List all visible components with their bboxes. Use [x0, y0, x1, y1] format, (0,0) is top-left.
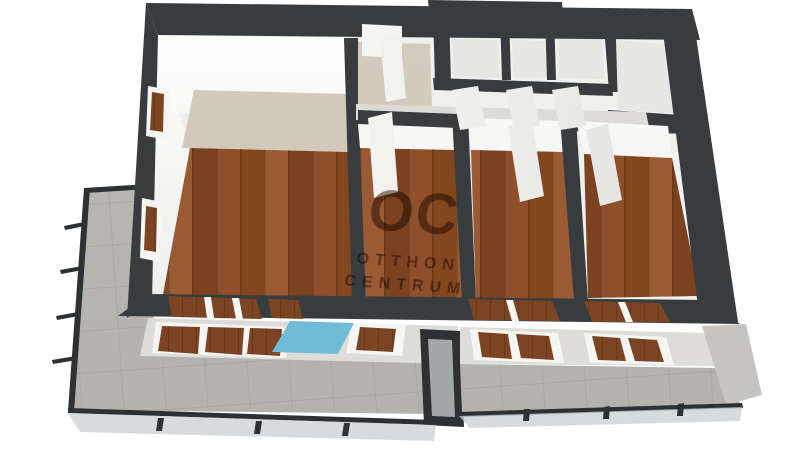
floorplan-3d-render: OC OTTHON CENTRUM — [0, 0, 800, 450]
